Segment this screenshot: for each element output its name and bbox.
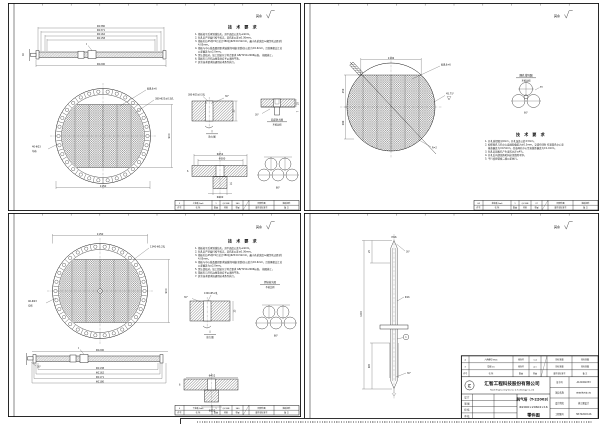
flange-dim-452: Φ452 <box>217 153 224 156</box>
notes-title: 技 术 要 求 <box>516 131 546 137</box>
parts-list-strip: 5 下筛板 δ=6 1 Q235B 340 同部件图 筛板组件 件号 名 称 数… <box>175 405 299 415</box>
info-value: A121002233 <box>577 381 592 384</box>
note-line: 7. 其余技术要求按通用技术条件执行。 <box>195 274 236 278</box>
strip-header-cell: 件号 <box>476 206 480 210</box>
strip-cell: 340 <box>236 203 241 205</box>
side-section-view: Φ1200 I 30° Φ1138 Φ1162 Φ1171 Φ1180 <box>27 346 169 383</box>
note-line: 4. 开孔后内部锐角毛刺必须清除干净。 <box>485 153 526 157</box>
strip-cell: 1 <box>215 203 217 205</box>
strip-cell: 花纹板 δ=6 <box>492 201 504 205</box>
info-value: 脱硫系统改造工程 <box>576 391 591 395</box>
parts-list-strip: 24 花纹板 δ=6 1 Q235B 37 同部件图 筛板组件 件号 名 称 数… <box>474 200 598 210</box>
strip-cell: 上筛板 δ=6 <box>193 201 205 205</box>
left-hole-label: 40-Φ23 <box>28 300 37 303</box>
sheet-top-right-perforated-plate: 其余 1192 450 200 网孔6×6 45.75° 1 R=2 网孔排列图 <box>304 3 599 211</box>
strip-header-cell: 材料 <box>224 206 228 210</box>
parts-header-cell: 图号或标准号 <box>553 372 565 376</box>
mesh-leader-label: 网孔6×6 <box>441 63 451 67</box>
sheet-bottom-left-sieve-tray: 其余 1150 1340-Φ5.2孔 40-Φ23 均布 900 技 术 要 求… <box>8 213 301 417</box>
info-label: 设计阶段 <box>555 401 565 405</box>
parts-header-cell: 重量 <box>533 372 537 376</box>
flange-dim-452: Φ452 <box>209 375 216 378</box>
dim-900: 900 <box>164 288 168 293</box>
roughness-label: 其余 <box>554 224 560 229</box>
dim-1150: 1150 <box>97 232 104 236</box>
strip-cell: 同部件图 <box>257 406 265 410</box>
strip-header-cell: 重量 <box>534 206 538 210</box>
dim-phi1200: Φ1200 <box>97 63 105 66</box>
truncated-lower-sheet-edge <box>180 418 599 424</box>
notes-title: 技 术 要 求 <box>228 24 258 30</box>
strip-cell: 5 <box>179 408 181 410</box>
flange-dim-6: 6 <box>179 384 181 387</box>
roughness-check-icon <box>565 222 573 229</box>
chamfer-angle-label: 30° <box>184 296 188 299</box>
note-line: 6. 筛板孔与开孔边缘毛刺应予以清除干净。 <box>195 270 241 274</box>
thread-label: M16 <box>391 236 397 239</box>
info-value: HZ-T22003-06 <box>576 413 592 416</box>
strip-cell: 340 <box>236 408 241 410</box>
parts-cell: 3 <box>465 367 467 369</box>
note-line: 3. 钻孔后因板孔产生变形允许≤4%。 <box>485 150 525 154</box>
detail-I-section: 380-Φ25±0.5孔 30° 25 I 放大图 <box>188 93 238 139</box>
strip-cell: 37 <box>535 203 538 205</box>
note-line: 公差偏差为±2.0mm。 <box>198 49 223 53</box>
parts-cell: 1.4 <box>533 360 537 362</box>
detail2-name: 局部放大图 <box>271 118 284 122</box>
drawing-spec: Φ2000×20602×16 <box>519 405 547 409</box>
strip-header-cell: 重量 <box>235 411 239 415</box>
strip-cell: 24 <box>477 203 480 205</box>
tray-plan-view: 网孔6×6 380-Φ25±0.5孔 40-Φ23 均布 1150 900 <box>32 83 174 189</box>
strip-cell: 同部件图 <box>556 201 564 205</box>
note-line: 基准偏差为±0.5mm，任意两孔中心至直线距偏差为±1.0mm。 <box>488 146 557 150</box>
dim-phi1171: Φ1171 <box>96 376 104 379</box>
hole-pattern-detail: 网孔排列图 不按比例 Φ6 60° <box>511 74 544 115</box>
parts-cell: 按标准图 <box>555 358 563 362</box>
strip-cell: 1 <box>215 408 217 410</box>
strip-cell: 2 <box>179 203 181 205</box>
strip-cell: Q235B <box>522 203 529 205</box>
detail2-scale: 不按比例 <box>273 122 283 126</box>
detail-scale: 放大图 <box>206 335 214 339</box>
drawing-title: 脱气塔（T-22003） <box>517 397 551 402</box>
sig-label-check: 校 核 <box>464 408 470 412</box>
chamfer-top-label: 30° <box>406 251 410 254</box>
dim-900: 900 <box>167 133 171 138</box>
detail-holes-label: 380-Φ25±0.5孔 <box>188 93 206 97</box>
dim-top-segment: 25 <box>368 250 371 253</box>
surface-roughness-mark: 其余 <box>256 11 275 18</box>
strip-cell: Q235B <box>223 203 230 205</box>
surface-roughness-mark: 其余 <box>554 11 573 18</box>
detail-holes-label: 1340-Φ5.2孔 <box>204 291 219 295</box>
parts-header-cell: 备 注 <box>583 372 588 376</box>
roughness-label: 其余 <box>554 13 560 18</box>
note-line: 5. 平行度按管板二级公差执行。 <box>485 157 519 161</box>
flange-dim-6: 6 <box>187 170 189 173</box>
strip-header-cell: 数量 <box>513 206 517 210</box>
flag-label: 1 <box>448 98 449 100</box>
strip-cell: 1 <box>514 203 516 205</box>
dim-bottom-segment: 605 <box>368 363 371 368</box>
dim-total-length: 1449 <box>360 311 363 317</box>
note-line: 4. 筛板与中心线及圆周要求轴线的同轴(全跳动)公差为±0.6mm，且首尾相交汇… <box>195 260 283 264</box>
strip-header-cell: 材料 <box>523 206 527 210</box>
parts-header-cell: 件号 <box>463 372 467 376</box>
dim-1150: 1150 <box>100 184 107 188</box>
strip-header-cell: 材料 <box>224 411 228 415</box>
pattern-angle-label: 60° <box>524 112 528 115</box>
holes-leader-label: 380-Φ25±0.5孔 <box>155 97 174 101</box>
dim-phi1162: Φ1162 <box>96 371 104 374</box>
dim-phi1162: Φ1162 <box>97 33 105 36</box>
strip-cell: 筛板组件 <box>282 406 290 410</box>
dim-phi1158: Φ1158 <box>97 37 105 40</box>
tray-plan-view: 1150 1340-Φ5.2孔 40-Φ23 均布 900 <box>28 232 170 344</box>
flange-section: Φ452 Φ380 Φ200 6 12 <box>187 151 247 199</box>
technical-notes: 技 术 要 求 1. 筛板校平后再划线钻孔，其平面度公差为≤4mm。 2. 钻孔… <box>195 24 283 64</box>
weld-detail-scale: 不按比例 <box>266 285 276 289</box>
note-line: 2. 相邻网孔与孔中心直线距偏差为±0.3mm，交错布列时 任意管孔中心至 <box>485 143 564 147</box>
dim-40: 40 <box>22 53 25 56</box>
pattern-title: 网孔排列图 <box>520 74 533 78</box>
dim-phi1180: Φ1180 <box>96 380 104 383</box>
strip-header-cell: 备 注 <box>583 206 588 210</box>
flange-dim-12: 12 <box>230 183 233 186</box>
radius-label: R=2 <box>432 147 437 150</box>
local-detail-section: 25 7 30° 局部放大图 不按比例 <box>255 99 300 126</box>
tip-angle-label: 30° <box>37 366 41 369</box>
roughness-check-icon <box>267 222 275 229</box>
sheet-bottom-right-tie-rod: 其余 M16 30° Φ16 1 30° 1449 25 605 <box>304 213 599 420</box>
dim-450: 450 <box>342 88 345 93</box>
roughness-check-icon <box>565 11 573 18</box>
info-label: 证书号 <box>556 380 563 384</box>
parts-cell: 垫圈 16 <box>487 365 495 369</box>
detail2-dim-7: 7 <box>297 110 300 112</box>
roughness-label: 其余 <box>256 13 262 18</box>
note-line: 6. 筛板孔与开孔边缘毛刺应予以清除干净。 <box>195 56 241 60</box>
note-line: 5. 需认真核对，加工组装尺寸符合要求 GB/T150-2006标准。 按图施工… <box>195 267 274 271</box>
strip-header-cell: 图号或标准号 <box>554 206 566 210</box>
detail-name: I <box>210 330 211 334</box>
sig-label-design: 设 计 <box>464 395 470 399</box>
note-line: 5. 需认真核对，加工组装尺寸符合要求 GB/T150-2006标准。 按图施工… <box>195 53 274 57</box>
chamfer-angle-label: 30° <box>225 95 229 98</box>
flange-dim-380: Φ380 <box>219 158 226 161</box>
detail-I-section: 1340-Φ5.2孔 30° 25 I 放大图 <box>184 291 236 339</box>
note-line: 7. 其余技术要求按通用技术条件执行。 <box>195 60 236 64</box>
side-section-view: Φ1380 Φ1371 Φ1162 Φ1158 I 40 Φ1200 <box>22 25 166 67</box>
strip-cell: 筛板组件 <box>581 201 589 205</box>
detail2-angle: 30° <box>255 114 259 117</box>
dim-1192: 1192 <box>388 56 395 60</box>
strip-cell: 下筛板 δ=6 <box>193 406 205 410</box>
company-logo: 汇 <box>465 381 474 390</box>
weld-detail-title: 焊接接头图 <box>264 280 277 284</box>
sig-label-draft: 制 图 <box>464 401 469 405</box>
company-name-en: Huizhi Engineering Science & Technology … <box>490 389 534 392</box>
note-line: 1. 筛板校平后再划线钻孔，其平面度公差为≤4mm。 <box>195 246 252 250</box>
note-line: 公差偏差为±2.0mm。 <box>198 263 223 267</box>
strip-header-cell: 备 注 <box>284 411 289 415</box>
mesh-area <box>62 105 144 168</box>
chamfer-bottom-label: 30° <box>407 372 411 375</box>
parts-cell: 按标准图 <box>581 365 589 369</box>
holes-leader-label: 1340-Φ5.2孔 <box>150 245 166 249</box>
dim-phi1200: Φ1200 <box>96 349 104 352</box>
parts-cell: 组合件 <box>518 358 524 362</box>
strip-header-cell: 图号或标准号 <box>255 411 267 415</box>
parts-header-cell: 数量 <box>519 372 523 376</box>
info-value: 施工图设计 <box>578 401 590 405</box>
mesh-leader-label: 网孔6×6 <box>147 87 157 91</box>
strip-header-cell: 图号或标准号 <box>255 206 267 210</box>
parts-cell: 按标准图 <box>581 358 589 362</box>
note-line: 4. 筛板与中心线及圆周要求轴线的同轴(全跳动)公差为±0.6mm，且首尾相交汇… <box>195 46 283 50</box>
cluster-angle-label: 60° <box>276 187 280 190</box>
dim-phi1138: Φ1138 <box>96 367 104 370</box>
strip-header-cell: 备 注 <box>284 206 289 210</box>
truncated-caption-text <box>197 421 593 423</box>
dim-phi1371: Φ1371 <box>97 29 105 32</box>
tie-rod-view: M16 30° Φ16 1 30° 1449 25 605 <box>360 234 411 399</box>
dim-phi1380: Φ1380 <box>97 25 105 28</box>
strip-header-cell: 名 称 <box>495 206 500 210</box>
strip-cell: Q235B <box>223 408 230 410</box>
mesh-area <box>347 75 435 151</box>
parts-cell: 按标准图 <box>555 365 563 369</box>
sheet-top-left-sieve-tray: 其余 Φ1380 Φ1371 Φ1162 Φ1158 I 40 Φ1200 <box>8 3 301 211</box>
note-line: 1. 筛板校平后再划线钻孔，其平面度公差为≤4mm。 <box>195 32 252 36</box>
logo-glyph: 汇 <box>468 383 472 388</box>
surface-roughness-mark: 其余 <box>256 222 275 229</box>
strip-header-cell: 件号 <box>177 411 181 415</box>
roughness-label: 其余 <box>256 224 262 229</box>
note-line: 3. 筛板孔位45列74行总计380孔Φ25±0.52mm，最小孔桥宽度≥(相邻… <box>195 39 283 43</box>
hole-dia-label: Φ6 <box>540 87 544 89</box>
strip-header-cell: 名 称 <box>196 411 201 415</box>
cluster-angle-label: 60° <box>274 335 278 338</box>
parts-cell: 4 <box>465 360 467 362</box>
bolt-pattern-detail: 60° <box>257 157 299 190</box>
detail2-dim-25: 25 <box>297 102 300 105</box>
detail-dim-25: 25 <box>233 309 236 312</box>
surface-roughness-mark: 其余 <box>554 222 573 229</box>
strip-header-cell: 件号 <box>177 206 181 210</box>
note-line: 2. 钻孔后严禁敲打校平校正，其孔距公差≤0.36mm。 <box>195 249 253 253</box>
parts-cell: 组合件 <box>518 365 524 369</box>
flange-dim-200: Φ200 <box>217 196 224 199</box>
bolt-pattern-detail: 60° <box>255 305 297 338</box>
strip-header-cell: 名 称 <box>196 206 201 210</box>
flange-section: Φ452 Φ252 6 <box>179 373 238 413</box>
parts-header-cell: 名 称 <box>489 372 494 376</box>
section-marker: I <box>86 42 87 46</box>
left-hole-label: 40-Φ23 <box>32 146 41 149</box>
note-line: 2. 钻孔后严禁敲打校平校正，其孔距公差≤0.36mm。 <box>195 35 253 39</box>
note-line: 3. 筛板孔位45列74行总计380孔Φ25±0.52mm，最小孔桥宽度≥(相邻… <box>195 253 283 257</box>
note-line: 1. 开孔直径图示6mm，开孔误差公差±3mm。 <box>485 139 536 143</box>
detail-scale: 放大图 <box>208 134 216 138</box>
title-block: 4 六角螺母 M16 组合件 1.4 按标准图 按标准图 3 垫圈 16 组合件… <box>461 356 598 419</box>
detail-name: I <box>212 130 213 134</box>
strip-header-cell: 重量 <box>235 206 239 210</box>
info-label: 项目名称 <box>555 391 565 395</box>
parts-list-strip: 2 上筛板 δ=6 1 Q235B 340 同部件图 筛板组件 件号 名 称 数… <box>175 200 299 210</box>
strip-cell: 筛板组件 <box>282 201 290 205</box>
left-hole-label2: 均布 <box>32 149 37 153</box>
company-name: 汇智工程科技股份有限公司 <box>484 380 540 387</box>
parts-cell: 4.1 <box>533 367 537 369</box>
notes-title: 技 术 要 求 <box>228 238 258 244</box>
technical-notes: 技 术 要 求 1. 开孔直径图示6mm，开孔误差公差±3mm。 2. 相邻网孔… <box>485 131 564 161</box>
dim-200: 200 <box>342 120 345 125</box>
left-hole-label2: 均布 <box>28 304 33 308</box>
info-label: 工程图号 <box>555 412 565 416</box>
parts-cell: 六角螺母 M16 <box>485 358 499 362</box>
section-marker: I <box>78 346 79 350</box>
plate-plan-view: 1192 450 200 网孔6×6 45.75° 1 R=2 <box>340 56 454 158</box>
pattern-scale: 不按比例 <box>522 78 532 82</box>
angle-label: 45.75° <box>446 93 454 96</box>
rod-dia-label: Φ16 <box>405 296 410 299</box>
balloon-label: 1 <box>405 336 407 339</box>
technical-notes: 技 术 要 求 1. 筛板校平后再划线钻孔，其平面度公差为≤4mm。 2. 钻孔… <box>195 238 283 289</box>
strip-header-cell: 数量 <box>214 206 218 210</box>
roughness-check-icon <box>267 11 275 18</box>
strip-cell: 同部件图 <box>257 201 265 205</box>
